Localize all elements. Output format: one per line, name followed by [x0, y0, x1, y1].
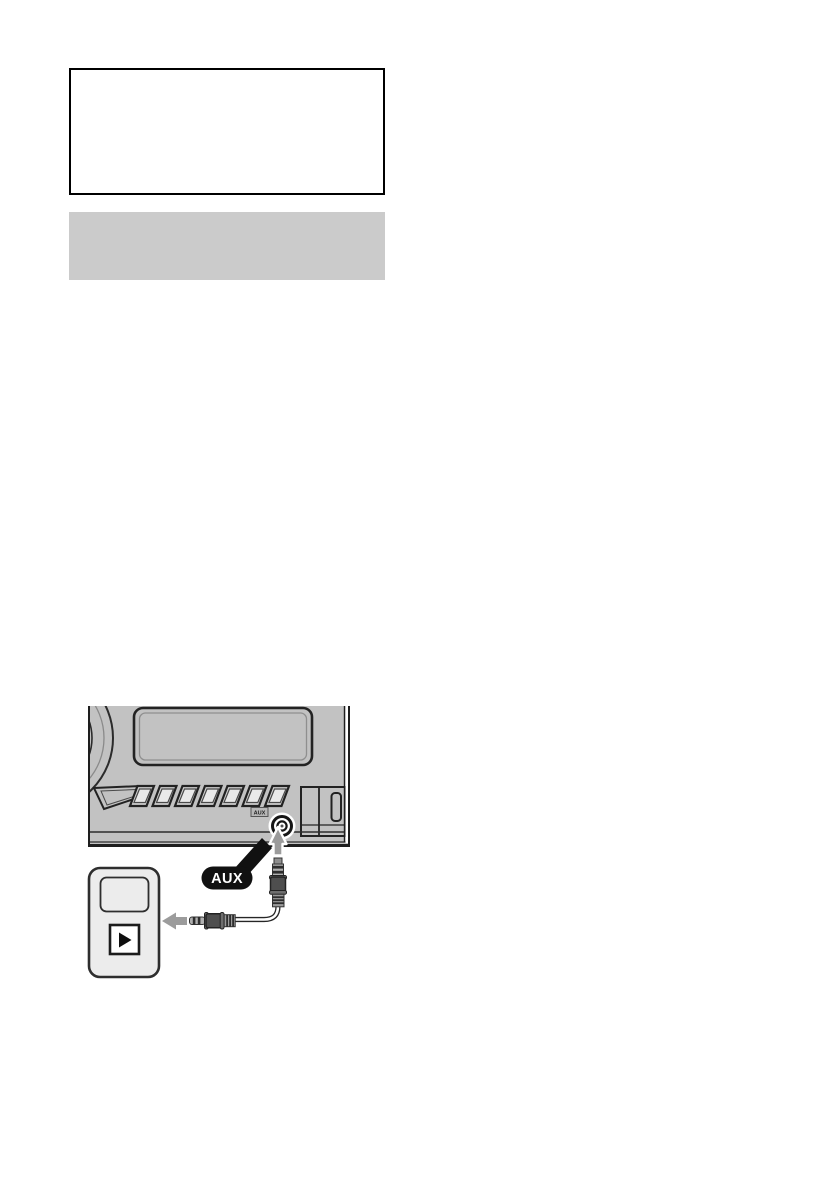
stereo-mini-plug-horizontal: [190, 913, 236, 930]
portable-audio-device: [89, 868, 159, 977]
audio-cable: [234, 906, 278, 920]
head-unit: AUX: [55, 694, 350, 847]
manual-page: AUX AUX: [0, 0, 840, 1190]
aux-callout-text: AUX: [211, 871, 243, 887]
play-button: [110, 925, 139, 954]
device-screen: [101, 878, 149, 912]
aux-callout: AUX: [202, 867, 253, 890]
stereo-mini-plug-vertical: [270, 858, 287, 907]
empty-note-box: [69, 68, 385, 195]
aux-connection-diagram: AUX AUX: [55, 694, 385, 994]
empty-section-header-box: [69, 212, 385, 280]
aux-jack-label-text: AUX: [254, 811, 266, 817]
detach-panel: [301, 787, 346, 836]
left-arrow-icon: [162, 913, 187, 930]
display-panel: [134, 708, 312, 765]
aux-jack-label: AUX: [251, 808, 268, 817]
